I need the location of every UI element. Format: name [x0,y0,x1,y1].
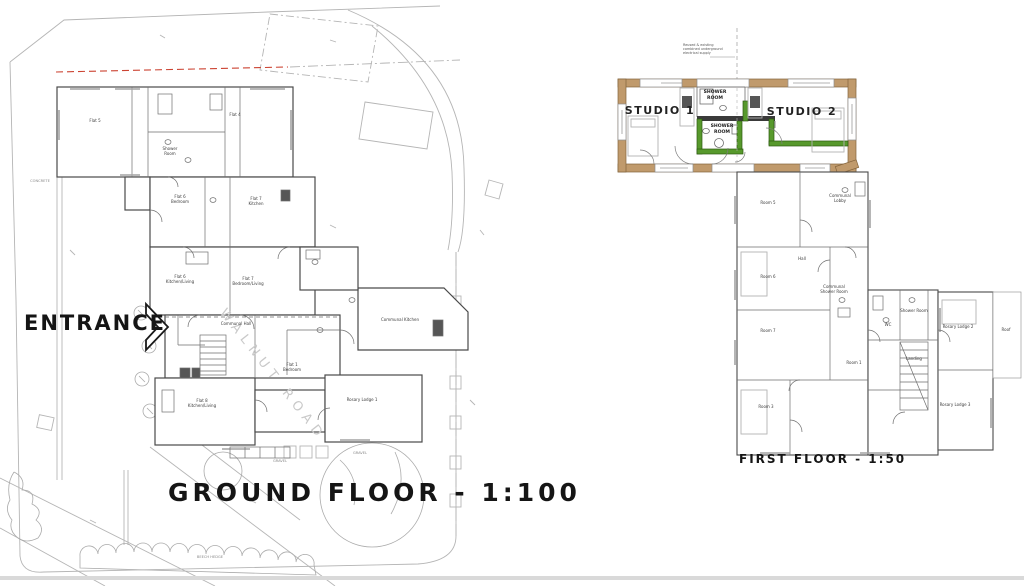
room-label: Room 7 [760,328,775,333]
site-label: BEECH HEDGE [197,555,223,559]
dark-wall [697,116,775,121]
site-label: CONCRETE [30,179,50,183]
room-label: Flat 4 [229,112,240,117]
room-label: Rosary Lodge 3 [940,402,971,407]
room-label: Flat 7 Bedroom/Living [232,276,263,286]
room-label: Shower Room [900,308,928,313]
room-label: Room 1 [846,360,861,365]
room-label: Flat 1 Bedroom [283,362,301,372]
room-label: Room 5 [760,200,775,205]
red-dashed-boundary [56,67,288,72]
first-floor-plan [737,172,1021,455]
ground-floor-building [57,87,468,445]
first-floor-title: FIRST FLOOR - 1:50 [739,452,906,466]
room-label: Flat 8 Kitchen/Living [188,398,216,408]
studio1-label: STUDIO 1 [625,104,695,117]
room-label: Communal Shower Room [820,284,848,294]
room-label: Room 6 [760,274,775,279]
room-label: Landing [906,356,922,361]
studio2-label: STUDIO 2 [767,105,837,118]
room-label: Flat 6 Bedroom [171,194,189,204]
room-label: Shower Room [163,146,178,156]
site-label: GRAVEL [273,459,287,463]
entrance-label: ENTRANCE [24,311,166,335]
room-label: Rosary Lodge 2 [943,324,974,329]
room-label: Flat 6 Kitchen/Living [166,274,194,284]
room-label: Hall [798,256,806,261]
studio-block [618,28,859,174]
room-label: WC [885,322,892,327]
electrical-annotation: Reused & existing combined underground e… [683,43,723,55]
site-label: GRAVEL [353,451,367,455]
room-label: Room 3 [758,404,773,409]
room-label: Communal Hall [221,321,252,326]
shower-room-label-top: SHOWER ROOM [704,90,727,101]
room-label: Communal Kitchen [381,317,419,322]
room-label: Flat 5 [89,118,100,123]
room-label: Roof [1002,327,1011,332]
room-label: Communal Lobby [829,193,851,203]
floorplan-sheet: WALNUT ROAD ENTRANCE GROUND FLOOR - 1:10… [0,0,1024,586]
ground-floor-title: GROUND FLOOR - 1:100 [168,478,581,507]
room-label: Flat 7 Kitchen [248,196,263,206]
shower-room-label-mid: SHOWER ROOM [711,124,734,135]
room-label: Rosary Lodge 1 [347,397,378,402]
